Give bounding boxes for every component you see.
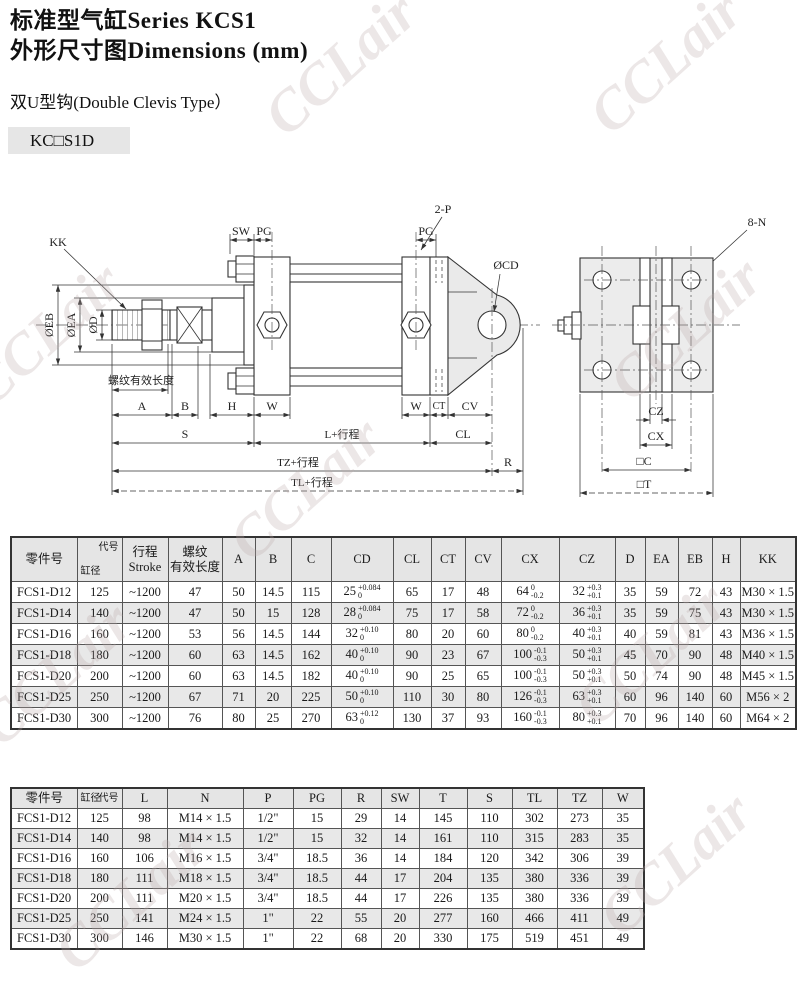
column-header: R — [341, 788, 381, 809]
dim-value-cell: 50 — [222, 582, 255, 603]
dim-value-cell: 20 — [381, 909, 419, 929]
column-header: 零件号 — [11, 788, 77, 809]
dim-value-cell: 60 — [712, 687, 740, 708]
type-subtitle: 双U型钩(Double Clevis Type） — [10, 88, 231, 113]
dim-label-2p: 2-P — [435, 202, 452, 216]
dim-value-cell: 44 — [341, 869, 381, 889]
dim-value-cell: 110 — [467, 829, 512, 849]
header-row: 零件号代号缸径行程Stroke螺纹有效长度ABCCDCLCTCVCXCZDEAE… — [11, 537, 796, 582]
table-row: FCS1-D20200~1200606314.518240+0.10090256… — [11, 666, 796, 687]
dim-value-cell: 300 — [77, 708, 122, 730]
dim-label-c-square: □C — [636, 454, 651, 468]
part-number: FCS1-D12 — [11, 582, 77, 603]
catalog-page: { "page": { "title_line1": "标准型气缸Series … — [0, 0, 800, 974]
dim-value-cell: 226 — [419, 889, 467, 909]
dim-value-cell: M30 × 1.5 — [167, 929, 243, 950]
column-header: P — [243, 788, 293, 809]
dim-value-cell: 35 — [615, 603, 645, 624]
column-header: PG — [293, 788, 341, 809]
dim-value-cell: 14 — [381, 849, 419, 869]
dim-value-cell: 204 — [419, 869, 467, 889]
dim-value-cell: 130 — [393, 708, 431, 730]
column-header: 代号缸径 — [77, 537, 122, 582]
dim-value-cell: 90 — [393, 645, 431, 666]
dim-label-eb: ØEB — [42, 313, 56, 337]
dim-value-cell: M14 × 1.5 — [167, 809, 243, 829]
dim-label-thread-length: 螺纹有效长度 — [108, 373, 174, 387]
dim-value-cell: M30 × 1.5 — [740, 582, 796, 603]
dim-value-cell: 14.5 — [255, 624, 291, 645]
dim-value-cell: 50+0.100 — [331, 687, 393, 708]
dim-value-cell: 14 — [381, 829, 419, 849]
dim-value-cell: 60 — [615, 687, 645, 708]
dim-value-cell: 60 — [168, 645, 222, 666]
dim-value-cell: 76 — [168, 708, 222, 730]
tie-rod-nut-bottom — [228, 368, 254, 394]
column-header: L — [122, 788, 167, 809]
dim-value-cell: M30 × 1.5 — [740, 603, 796, 624]
corner-label-bottom: 缸径 — [81, 793, 101, 805]
column-header: SW — [381, 788, 419, 809]
dim-value-cell: 90 — [678, 666, 712, 687]
dim-value-cell: 50+0.3+0.1 — [559, 645, 615, 666]
dim-value-cell: M18 × 1.5 — [167, 869, 243, 889]
dim-value-cell: 140 — [77, 603, 122, 624]
dim-value-cell: 300 — [77, 929, 122, 950]
part-number: FCS1-D12 — [11, 809, 77, 829]
table-row: FCS1-D18180~1200606314.516240+0.10090236… — [11, 645, 796, 666]
dim-value-cell: 135 — [467, 889, 512, 909]
column-header: C — [291, 537, 331, 582]
dim-label-cz: CZ — [648, 404, 663, 418]
dim-value-cell: 140 — [678, 687, 712, 708]
dim-value-cell: 49 — [602, 929, 644, 950]
dim-value-cell: 180 — [77, 869, 122, 889]
dim-label-cx: CX — [648, 429, 665, 443]
table-row: FCS1-D1414098M14 × 1.51/2"15321416111031… — [11, 829, 644, 849]
title-block: 标准型气缸Series KCS1 外形尺寸图Dimensions (mm) — [10, 6, 308, 66]
dim-value-cell: 451 — [557, 929, 602, 950]
table-row: FCS1-D16160~1200535614.514432+0.10080206… — [11, 624, 796, 645]
dim-value-cell: 14 — [381, 809, 419, 829]
dim-value-cell: 3/4" — [243, 889, 293, 909]
column-header: H — [712, 537, 740, 582]
dim-value-cell: 32+0.3+0.1 — [559, 582, 615, 603]
dim-value-cell: 283 — [557, 829, 602, 849]
dim-value-cell: 39 — [602, 849, 644, 869]
dim-value-cell: 160-0.1-0.3 — [501, 708, 559, 730]
dim-value-cell: 140 — [77, 829, 122, 849]
dim-value-cell: ~1200 — [122, 645, 168, 666]
dim-label-l-stroke: L+行程 — [325, 428, 360, 441]
dim-value-cell: 800-0.2 — [501, 624, 559, 645]
dim-value-cell: 40+0.3+0.1 — [559, 624, 615, 645]
dim-value-cell: 17 — [381, 889, 419, 909]
dim-value-cell: 40+0.100 — [331, 645, 393, 666]
dim-value-cell: 40+0.100 — [331, 666, 393, 687]
dim-value-cell: 93 — [465, 708, 501, 730]
dim-label-b: B — [181, 399, 189, 413]
dim-value-cell: 125 — [77, 809, 122, 829]
dim-value-cell: 67 — [168, 687, 222, 708]
dim-label-cl: CL — [455, 427, 470, 441]
dim-value-cell: 141 — [122, 909, 167, 929]
dim-value-cell: 22 — [293, 909, 341, 929]
dim-value-cell: 640-0.2 — [501, 582, 559, 603]
dim-value-cell: 250 — [77, 909, 122, 929]
dim-value-cell: 63 — [222, 666, 255, 687]
dim-value-cell: 98 — [122, 829, 167, 849]
dim-value-cell: 184 — [419, 849, 467, 869]
cylinder-tube — [290, 282, 402, 368]
column-header: W — [602, 788, 644, 809]
part-number: FCS1-D25 — [11, 909, 77, 929]
dim-value-cell: 43 — [712, 603, 740, 624]
column-header: 零件号 — [11, 537, 77, 582]
table-row: FCS1-D12125~1200475014.511525+0.08406517… — [11, 582, 796, 603]
dim-value-cell: 302 — [512, 809, 557, 829]
dim-value-cell: 53 — [168, 624, 222, 645]
dim-value-cell: 59 — [645, 603, 678, 624]
dim-value-cell: 1/2" — [243, 829, 293, 849]
column-header: TL — [512, 788, 557, 809]
part-number: FCS1-D18 — [11, 869, 77, 889]
page-title-line2: 外形尺寸图Dimensions (mm) — [10, 36, 308, 66]
dim-value-cell: 162 — [291, 645, 331, 666]
dim-value-cell: 63 — [222, 645, 255, 666]
dim-value-cell: 14.5 — [255, 582, 291, 603]
column-header: CV — [465, 537, 501, 582]
column-header: 代号缸径 — [77, 788, 122, 809]
dim-value-cell: M64 × 2 — [740, 708, 796, 730]
dim-label-a: A — [138, 399, 147, 413]
column-header: D — [615, 537, 645, 582]
dim-value-cell: 39 — [602, 889, 644, 909]
watermark: CCLair — [576, 0, 755, 147]
column-header: CT — [431, 537, 465, 582]
dim-value-cell: 32+0.100 — [331, 624, 393, 645]
dim-value-cell: 80+0.3+0.1 — [559, 708, 615, 730]
table-row: FCS1-D1212598M14 × 1.51/2"15291414511030… — [11, 809, 644, 829]
column-header: CD — [331, 537, 393, 582]
dim-value-cell: 17 — [431, 582, 465, 603]
dim-label-sw: SW — [232, 224, 251, 238]
dim-value-cell: 43 — [712, 582, 740, 603]
dim-value-cell: 144 — [291, 624, 331, 645]
table-row: FCS1-D30300~120076802527063+0.1201303793… — [11, 708, 796, 730]
dim-value-cell: 18.5 — [293, 869, 341, 889]
dim-value-cell: 47 — [168, 582, 222, 603]
dim-value-cell: 36 — [341, 849, 381, 869]
dim-value-cell: 80 — [222, 708, 255, 730]
dim-value-cell: 20 — [381, 929, 419, 950]
dim-value-cell: 20 — [431, 624, 465, 645]
dim-value-cell: 32 — [341, 829, 381, 849]
dimension-table-1: 零件号代号缸径行程Stroke螺纹有效长度ABCCDCLCTCVCXCZDEAE… — [10, 536, 797, 730]
dim-label-ea: ØEA — [64, 312, 78, 337]
corner-label-top: 代号 — [99, 542, 119, 554]
dim-label-ct: CT — [433, 401, 446, 412]
dim-value-cell: 15 — [293, 809, 341, 829]
dim-value-cell: 411 — [557, 909, 602, 929]
dim-value-cell: 80 — [393, 624, 431, 645]
dim-value-cell: 68 — [341, 929, 381, 950]
part-number: FCS1-D18 — [11, 645, 77, 666]
dim-value-cell: 48 — [465, 582, 501, 603]
dim-value-cell: 110 — [467, 809, 512, 829]
dim-label-w-rear: W — [410, 399, 422, 413]
dim-value-cell: 35 — [602, 829, 644, 849]
dim-value-cell: 48 — [712, 645, 740, 666]
part-number: FCS1-D20 — [11, 666, 77, 687]
dim-value-cell: 15 — [255, 603, 291, 624]
dim-label-pg-rear: PG — [418, 224, 434, 238]
dim-value-cell: 336 — [557, 869, 602, 889]
dim-value-cell: 18.5 — [293, 889, 341, 909]
dim-label-r: R — [504, 455, 512, 469]
dim-value-cell: 145 — [419, 809, 467, 829]
part-number: FCS1-D30 — [11, 929, 77, 950]
dim-value-cell: 15 — [293, 829, 341, 849]
dim-label-tl-stroke: TL+行程 — [291, 476, 333, 489]
dim-value-cell: 22 — [293, 929, 341, 950]
dim-value-cell: ~1200 — [122, 687, 168, 708]
dim-value-cell: 71 — [222, 687, 255, 708]
clevis-plate — [430, 257, 448, 395]
part-number: FCS1-D16 — [11, 849, 77, 869]
dim-value-cell: 72 — [678, 582, 712, 603]
dim-value-cell: 200 — [77, 889, 122, 909]
dim-value-cell: 273 — [557, 809, 602, 829]
dim-value-cell: 80 — [465, 687, 501, 708]
dim-value-cell: 200 — [77, 666, 122, 687]
wrench-flats — [177, 307, 202, 343]
dim-value-cell: 60 — [712, 708, 740, 730]
dim-value-cell: 14.5 — [255, 645, 291, 666]
technical-drawing: KK SW PG 2-P PG ØCD 8-N ØEB ØEA ØD 螺纹有效长… — [0, 188, 800, 520]
dim-value-cell: 14.5 — [255, 666, 291, 687]
dim-value-cell: 29 — [341, 809, 381, 829]
dim-value-cell: 250 — [77, 687, 122, 708]
dim-value-cell: 277 — [419, 909, 467, 929]
table-row: FCS1-D30300146M30 × 1.51"226820330175519… — [11, 929, 644, 950]
dim-value-cell: 380 — [512, 889, 557, 909]
column-header: KK — [740, 537, 796, 582]
dim-value-cell: 40 — [615, 624, 645, 645]
dim-value-cell: 59 — [645, 582, 678, 603]
part-number: FCS1-D30 — [11, 708, 77, 730]
dim-value-cell: 146 — [122, 929, 167, 950]
dim-value-cell: 60 — [465, 624, 501, 645]
dim-value-cell: 160 — [77, 624, 122, 645]
dim-value-cell: 330 — [419, 929, 467, 950]
dim-value-cell: 160 — [77, 849, 122, 869]
dim-value-cell: ~1200 — [122, 624, 168, 645]
pin-end — [558, 312, 581, 339]
dim-value-cell: M20 × 1.5 — [167, 889, 243, 909]
column-header: EB — [678, 537, 712, 582]
dim-value-cell: 67 — [465, 645, 501, 666]
dim-value-cell: 39 — [602, 869, 644, 889]
dim-value-cell: 519 — [512, 929, 557, 950]
dim-value-cell: 45 — [615, 645, 645, 666]
table-row: FCS1-D25250141M24 × 1.51"225520277160466… — [11, 909, 644, 929]
dim-value-cell: 110 — [393, 687, 431, 708]
column-header: T — [419, 788, 467, 809]
dim-value-cell: 100-0.1-0.3 — [501, 645, 559, 666]
dim-value-cell: M56 × 2 — [740, 687, 796, 708]
dim-value-cell: 182 — [291, 666, 331, 687]
dim-value-cell: 65 — [465, 666, 501, 687]
dim-value-cell: 63+0.3+0.1 — [559, 687, 615, 708]
dim-value-cell: 44 — [341, 889, 381, 909]
dim-value-cell: M16 × 1.5 — [167, 849, 243, 869]
dim-value-cell: 135 — [467, 869, 512, 889]
table-row: FCS1-D18180111M18 × 1.53/4"18.5441720413… — [11, 869, 644, 889]
corner-label-top: 代号 — [99, 793, 119, 805]
dim-value-cell: M40 × 1.5 — [740, 645, 796, 666]
dim-value-cell: 140 — [678, 708, 712, 730]
dim-value-cell: 43 — [712, 624, 740, 645]
dim-value-cell: 111 — [122, 889, 167, 909]
part-number: FCS1-D25 — [11, 687, 77, 708]
dim-label-cd: ØCD — [493, 258, 519, 272]
dim-value-cell: 23 — [431, 645, 465, 666]
column-header: B — [255, 537, 291, 582]
dim-label-8n: 8-N — [748, 215, 767, 229]
dim-label-t-square: □T — [637, 477, 652, 491]
dim-label-kk: KK — [49, 235, 67, 249]
dim-value-cell: 160 — [467, 909, 512, 929]
dim-value-cell: 81 — [678, 624, 712, 645]
dim-value-cell: 37 — [431, 708, 465, 730]
dim-value-cell: 75 — [678, 603, 712, 624]
part-number: FCS1-D14 — [11, 603, 77, 624]
dim-label-pg-front: PG — [256, 224, 272, 238]
dim-value-cell: 270 — [291, 708, 331, 730]
dim-value-cell: 48 — [712, 666, 740, 687]
column-header: S — [467, 788, 512, 809]
dim-value-cell: 75 — [393, 603, 431, 624]
column-header: 行程Stroke — [122, 537, 168, 582]
rod-nut — [142, 300, 162, 350]
dim-value-cell: 17 — [381, 869, 419, 889]
dim-value-cell: 380 — [512, 869, 557, 889]
dim-value-cell: 100-0.1-0.3 — [501, 666, 559, 687]
dim-label-w-front: W — [266, 399, 278, 413]
rod-step-block — [212, 298, 244, 352]
dim-value-cell: 25 — [255, 708, 291, 730]
dim-label-cv: CV — [462, 399, 479, 413]
dim-value-cell: 466 — [512, 909, 557, 929]
dim-value-cell: 126-0.1-0.3 — [501, 687, 559, 708]
dim-value-cell: 50+0.3+0.1 — [559, 666, 615, 687]
column-header: N — [167, 788, 243, 809]
column-header: CL — [393, 537, 431, 582]
column-header: A — [222, 537, 255, 582]
dim-value-cell: 120 — [467, 849, 512, 869]
dim-value-cell: 17 — [431, 603, 465, 624]
dim-value-cell: 125 — [77, 582, 122, 603]
dim-value-cell: 175 — [467, 929, 512, 950]
dim-label-d: ØD — [86, 316, 100, 334]
dim-value-cell: 306 — [557, 849, 602, 869]
dim-value-cell: 20 — [255, 687, 291, 708]
dim-value-cell: 3/4" — [243, 869, 293, 889]
column-header: TZ — [557, 788, 602, 809]
dim-value-cell: M45 × 1.5 — [740, 666, 796, 687]
part-number: FCS1-D14 — [11, 829, 77, 849]
dim-value-cell: 225 — [291, 687, 331, 708]
dim-value-cell: 28+0.0840 — [331, 603, 393, 624]
dim-value-cell: 111 — [122, 869, 167, 889]
table-row: FCS1-D14140~120047501512828+0.0840751758… — [11, 603, 796, 624]
dim-value-cell: 315 — [512, 829, 557, 849]
dim-value-cell: ~1200 — [122, 708, 168, 730]
dim-value-cell: 90 — [393, 666, 431, 687]
dim-value-cell: 161 — [419, 829, 467, 849]
dim-label-tz-stroke: TZ+行程 — [277, 456, 319, 469]
dim-value-cell: M14 × 1.5 — [167, 829, 243, 849]
dim-value-cell: 30 — [431, 687, 465, 708]
dim-value-cell: 25+0.0840 — [331, 582, 393, 603]
dim-value-cell: 336 — [557, 889, 602, 909]
dim-value-cell: M36 × 1.5 — [740, 624, 796, 645]
dim-value-cell: 115 — [291, 582, 331, 603]
dim-value-cell: 70 — [615, 708, 645, 730]
dim-value-cell: 106 — [122, 849, 167, 869]
dim-value-cell: 96 — [645, 708, 678, 730]
dim-value-cell: 3/4" — [243, 849, 293, 869]
dim-value-cell: 35 — [615, 582, 645, 603]
column-header: CZ — [559, 537, 615, 582]
dim-value-cell: 65 — [393, 582, 431, 603]
dim-value-cell: 1" — [243, 929, 293, 950]
dim-value-cell: 50 — [615, 666, 645, 687]
table-row: FCS1-D20200111M20 × 1.53/4"18.5441722613… — [11, 889, 644, 909]
dim-value-cell: 63+0.120 — [331, 708, 393, 730]
dim-value-cell: 36+0.3+0.1 — [559, 603, 615, 624]
column-header: 螺纹有效长度 — [168, 537, 222, 582]
dim-value-cell: 18.5 — [293, 849, 341, 869]
dim-value-cell: M24 × 1.5 — [167, 909, 243, 929]
dim-value-cell: 50 — [222, 603, 255, 624]
dim-value-cell: 55 — [341, 909, 381, 929]
dim-value-cell: 60 — [168, 666, 222, 687]
dim-value-cell: 47 — [168, 603, 222, 624]
dim-value-cell: 98 — [122, 809, 167, 829]
part-number: FCS1-D20 — [11, 889, 77, 909]
dim-value-cell: 70 — [645, 645, 678, 666]
header-row: 零件号代号缸径LNPPGRSWTSTLTZW — [11, 788, 644, 809]
dim-value-cell: ~1200 — [122, 666, 168, 687]
dim-value-cell: 1/2" — [243, 809, 293, 829]
column-header: CX — [501, 537, 559, 582]
dim-value-cell: ~1200 — [122, 582, 168, 603]
model-code-badge: KC□S1D — [8, 127, 130, 154]
dim-value-cell: ~1200 — [122, 603, 168, 624]
dim-value-cell: 720-0.2 — [501, 603, 559, 624]
dim-value-cell: 1" — [243, 909, 293, 929]
corner-label-bottom: 缸径 — [81, 566, 101, 578]
part-number: FCS1-D16 — [11, 624, 77, 645]
dim-label-h: H — [228, 399, 237, 413]
page-title-line1: 标准型气缸Series KCS1 — [10, 6, 308, 36]
dim-value-cell: 96 — [645, 687, 678, 708]
dim-value-cell: 128 — [291, 603, 331, 624]
dim-value-cell: 56 — [222, 624, 255, 645]
dim-value-cell: 35 — [602, 809, 644, 829]
